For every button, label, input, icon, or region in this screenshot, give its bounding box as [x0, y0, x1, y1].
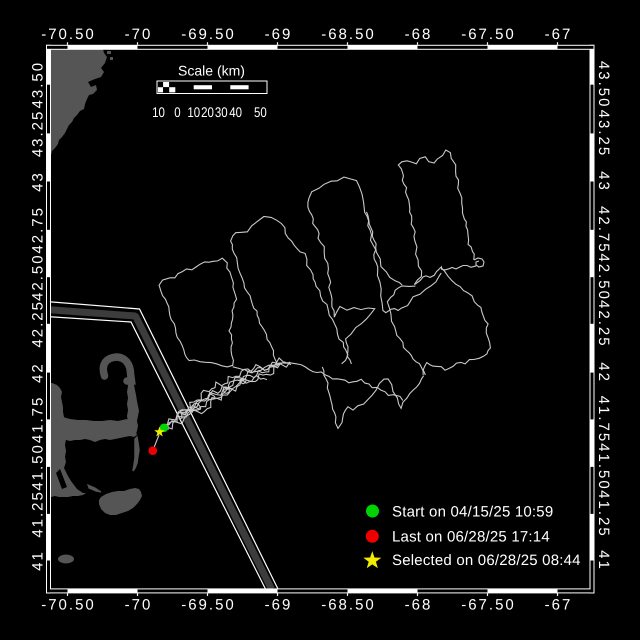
svg-text:20: 20 [201, 104, 214, 120]
svg-text:43: 43 [30, 171, 47, 192]
svg-text:-68.50: -68.50 [321, 26, 376, 43]
svg-text:41.25: 41.25 [30, 490, 47, 538]
svg-text:41.75: 41.75 [595, 396, 612, 444]
svg-text:42.50: 42.50 [595, 253, 612, 301]
svg-text:10: 10 [187, 104, 200, 120]
svg-text:50: 50 [254, 104, 267, 120]
svg-text:-68.50: -68.50 [321, 597, 376, 614]
svg-text:-68: -68 [405, 597, 433, 614]
svg-text:41.50: 41.50 [30, 443, 47, 491]
svg-text:42.75: 42.75 [595, 206, 612, 254]
svg-text:41.50: 41.50 [595, 443, 612, 491]
svg-text:42.25: 42.25 [595, 300, 612, 348]
svg-text:Scale (km): Scale (km) [178, 63, 245, 79]
svg-text:-67: -67 [545, 26, 573, 43]
svg-text:41: 41 [30, 550, 47, 571]
svg-text:-67: -67 [545, 597, 573, 614]
svg-text:10: 10 [152, 104, 165, 120]
svg-text:0: 0 [174, 104, 181, 120]
svg-text:-69.50: -69.50 [181, 597, 236, 614]
svg-text:-70: -70 [125, 26, 153, 43]
svg-text:Start on 04/15/25 10:59: Start on 04/15/25 10:59 [392, 504, 553, 521]
svg-text:40: 40 [229, 104, 242, 120]
svg-text:41.25: 41.25 [595, 490, 612, 538]
svg-text:-70.50: -70.50 [41, 26, 96, 43]
svg-text:30: 30 [215, 104, 228, 120]
svg-text:-69.50: -69.50 [181, 26, 236, 43]
svg-text:-68: -68 [405, 26, 433, 43]
svg-text:43.50: 43.50 [595, 61, 612, 109]
svg-text:-67.50: -67.50 [461, 597, 516, 614]
svg-text:43.25: 43.25 [595, 110, 612, 158]
svg-text:42: 42 [595, 362, 612, 383]
svg-text:42: 42 [30, 362, 47, 383]
svg-text:Last on 06/28/25 17:14: Last on 06/28/25 17:14 [392, 528, 550, 545]
svg-text:-69: -69 [265, 597, 293, 614]
svg-text:42.25: 42.25 [30, 300, 47, 348]
svg-text:-69: -69 [265, 26, 293, 43]
svg-text:41: 41 [595, 550, 612, 571]
svg-text:-67.50: -67.50 [461, 26, 516, 43]
svg-text:-70: -70 [125, 597, 153, 614]
svg-text:43.50: 43.50 [30, 61, 47, 109]
svg-text:43: 43 [595, 171, 612, 192]
svg-text:-70.50: -70.50 [41, 597, 96, 614]
svg-text:43.25: 43.25 [30, 110, 47, 158]
svg-text:42.75: 42.75 [30, 206, 47, 254]
svg-text:42.50: 42.50 [30, 253, 47, 301]
svg-text:Selected on 06/28/25 08:44: Selected on 06/28/25 08:44 [392, 552, 581, 569]
svg-text:41.75: 41.75 [30, 396, 47, 444]
